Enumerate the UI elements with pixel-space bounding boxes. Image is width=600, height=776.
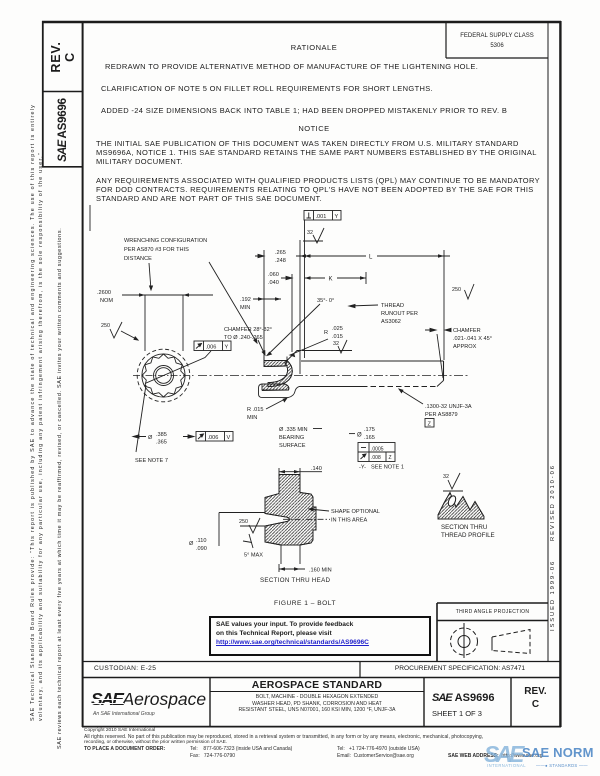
svg-text:250: 250 (452, 287, 461, 293)
svg-text:Z: Z (389, 455, 392, 461)
svg-text:R .015: R .015 (247, 407, 263, 413)
svg-text:.006: .006 (208, 435, 219, 441)
svg-text:SHAPE OPTIONAL: SHAPE OPTIONAL (331, 509, 380, 515)
svg-text:RUNOUT PER: RUNOUT PER (381, 311, 418, 317)
svg-text:32: 32 (307, 230, 313, 236)
svg-text:PER AS870 #3 FOR THIS: PER AS870 #3 FOR THIS (124, 247, 189, 253)
svg-text:.1300-32 UNJF-3A: .1300-32 UNJF-3A (425, 404, 472, 410)
svg-text:TO Ø .240-.265: TO Ø .240-.265 (224, 335, 263, 341)
svg-text:Z: Z (428, 422, 432, 428)
svg-text:SECTION THRU HEAD: SECTION THRU HEAD (260, 577, 331, 584)
svg-text:250: 250 (101, 323, 110, 329)
svg-text:.110: .110 (196, 538, 206, 544)
svg-text:.006: .006 (206, 345, 217, 351)
svg-text:K: K (329, 277, 333, 283)
svg-text:PER AS8879: PER AS8879 (425, 412, 458, 418)
svg-text:WRENCHING CONFIGURATION: WRENCHING CONFIGURATION (124, 238, 207, 244)
svg-text:Y: Y (225, 345, 229, 351)
svg-text:250: 250 (239, 519, 248, 525)
svg-text:SEE NOTE 1: SEE NOTE 1 (371, 465, 404, 471)
svg-text:.265: .265 (275, 250, 286, 256)
svg-text:THREAD: THREAD (381, 303, 404, 309)
svg-text:MIN: MIN (247, 415, 257, 421)
svg-text:.001: .001 (316, 214, 327, 220)
svg-text:FIGURE 1 – BOLT: FIGURE 1 – BOLT (274, 600, 336, 607)
svg-text:V: V (227, 435, 231, 441)
svg-text:.060: .060 (268, 272, 279, 278)
svg-text:.165: .165 (364, 435, 375, 441)
svg-text:-Y-: -Y- (359, 465, 366, 471)
svg-text:.008: .008 (371, 455, 381, 461)
svg-text:.385: .385 (156, 432, 167, 438)
svg-text:Y: Y (335, 214, 339, 220)
svg-text:MIN: MIN (240, 305, 250, 311)
svg-text:.140: .140 (311, 466, 322, 472)
svg-text:.175: .175 (364, 427, 375, 433)
svg-text:5° MAX: 5° MAX (244, 553, 263, 559)
svg-text:Ø .335 MIN: Ø .335 MIN (279, 427, 308, 433)
svg-text:DISTANCE: DISTANCE (124, 256, 152, 262)
svg-text:.090: .090 (196, 546, 207, 552)
svg-text:NOM: NOM (100, 298, 113, 304)
svg-text:R: R (324, 330, 328, 336)
svg-text:.025: .025 (332, 326, 343, 332)
svg-text:THREAD PROFILE: THREAD PROFILE (441, 532, 495, 539)
svg-text:Ø: Ø (357, 433, 362, 439)
svg-text:BEARING: BEARING (279, 435, 304, 441)
svg-text:CHAMFER 28°-32°: CHAMFER 28°-32° (224, 327, 272, 333)
svg-text:.365: .365 (156, 440, 167, 446)
svg-text:.248: .248 (275, 258, 286, 264)
svg-text:IN THIS AREA: IN THIS AREA (331, 518, 368, 524)
svg-text:.0005: .0005 (371, 447, 384, 453)
svg-text:CHAMFER: CHAMFER (453, 328, 481, 334)
svg-text:.192: .192 (240, 297, 251, 303)
svg-text:.040: .040 (268, 280, 279, 286)
svg-text:Ø: Ø (148, 435, 153, 441)
svg-text:SEE NOTE 7: SEE NOTE 7 (135, 458, 168, 464)
svg-text:AS3062: AS3062 (381, 319, 401, 325)
svg-text:35°- 0°: 35°- 0° (317, 298, 334, 304)
svg-text:32: 32 (443, 474, 449, 480)
svg-text:SECTION THRU: SECTION THRU (441, 524, 487, 531)
svg-text:.160 MIN: .160 MIN (309, 568, 332, 574)
svg-text:APPROX: APPROX (453, 344, 477, 350)
svg-text:L: L (369, 255, 373, 261)
svg-text:.015: .015 (332, 334, 343, 340)
svg-text:.021-.041 X 45°: .021-.041 X 45° (453, 336, 492, 342)
svg-text:SURFACE: SURFACE (279, 443, 306, 449)
svg-text:.2600: .2600 (97, 290, 111, 296)
svg-text:Ø: Ø (189, 541, 194, 547)
